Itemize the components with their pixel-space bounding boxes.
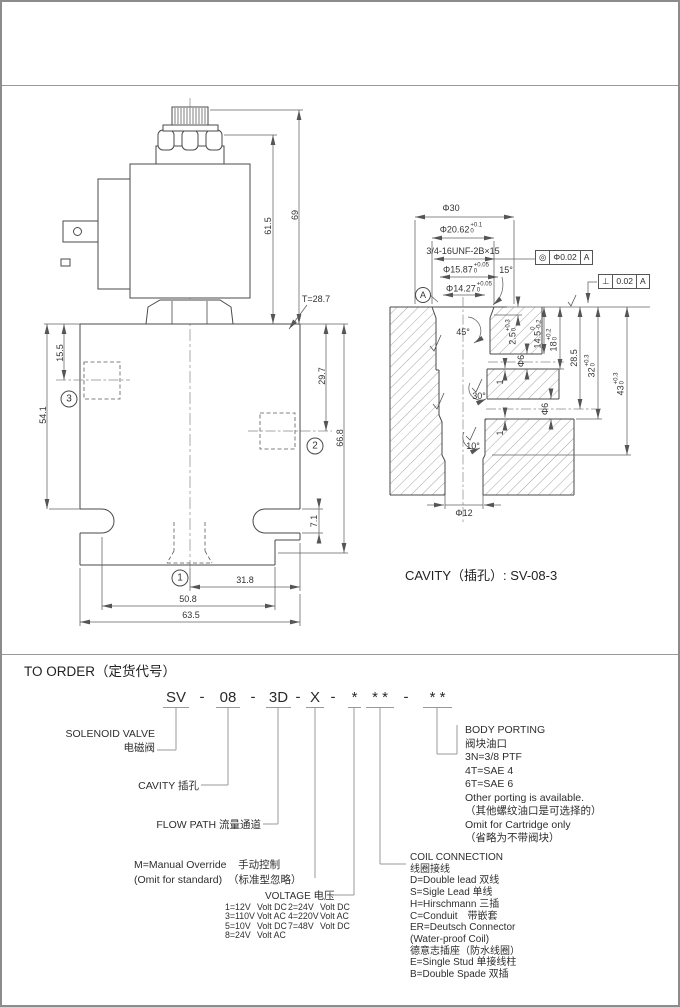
dim-31-8: 31.8	[236, 575, 254, 585]
dim-66-8: 66.8	[335, 429, 345, 447]
dim-dia15-87: Φ15.87 +0.050	[443, 264, 489, 275]
label-cavity: CAVITY 插孔	[102, 778, 199, 793]
code-dash-3: -	[296, 689, 301, 706]
dim-2-5: 2.5 +0.30	[507, 319, 518, 344]
angle-15: 15°	[499, 265, 513, 275]
label-manual-override: M=Manual Override 手动控制 (Omit for standar…	[134, 857, 301, 887]
gdt-perpendicularity-frame: ⊥ 0.02 A	[598, 274, 650, 289]
code-part-x: X	[306, 689, 324, 708]
code-part-star: *	[348, 689, 361, 708]
dim-54-1: 54.1	[38, 406, 48, 424]
dim-dia6-b: Φ6	[540, 403, 550, 415]
dim-1b: 1	[495, 430, 505, 435]
voltage-unit: Volt DC	[320, 922, 356, 931]
dim-dia6-a: Φ6	[516, 355, 526, 367]
coil-connection-block: COIL CONNECTION 线圈接线 D=Double lead 双线 S=…	[410, 852, 520, 981]
code-part-08: 08	[216, 689, 240, 708]
voltage-option: 8=24V	[225, 931, 257, 940]
dim-43: 43 +0.30	[615, 373, 626, 396]
voltage-unit: Volt AC	[257, 931, 288, 940]
dim-18: 18 +0.20	[548, 329, 559, 352]
code-part-sv: SV	[163, 689, 189, 708]
body-porting-block: BODY PORTING 阀块油口 3N=3/8 PTF 4T=SAE 4 6T…	[465, 724, 602, 846]
dim-dia12: Φ12	[455, 508, 472, 518]
dim-32: 32 +0.30	[586, 355, 597, 378]
dim-69: 69	[290, 210, 300, 220]
thread-spec: 3/4-16UNF-2B×15	[426, 246, 499, 256]
datum-a-flag: A	[415, 287, 431, 303]
dim-61-5: 61.5	[263, 217, 273, 235]
perpendicularity-icon: ⊥	[599, 275, 612, 288]
label-solenoid-valve: SOLENOID VALVE 电磁阀	[42, 728, 155, 755]
port-1-badge: 1	[172, 570, 189, 587]
code-part-star-pair-2: * *	[423, 689, 452, 708]
dim-28-5: 28.5	[569, 349, 579, 367]
voltage-option: 7=48V	[288, 922, 320, 931]
code-part-3d: 3D	[266, 689, 291, 708]
angle-45: 45°	[456, 327, 470, 337]
dim-7-1: 7.1	[309, 515, 319, 528]
voltage-options-table: 1=12V Volt DC 2=24V Volt DC 3=110V Volt …	[225, 903, 356, 940]
dim-29-7: 29.7	[317, 367, 327, 385]
dim-dia30: Φ30	[442, 203, 459, 213]
label-voltage-title: VOLTAGE 电压	[265, 888, 335, 903]
code-part-star-pair-1: * *	[366, 689, 394, 708]
dim-15-5: 15.5	[55, 344, 65, 362]
label-flow-path: FLOW PATH 流量通道	[132, 817, 261, 832]
gdt-concentricity-frame: ◎ Φ0.02 A	[535, 250, 593, 265]
dim-dia14-27: Φ14.27 +0.050	[446, 283, 492, 294]
code-dash-1: -	[200, 689, 205, 706]
code-dash-5: -	[404, 689, 409, 706]
cavity-caption: CAVITY（插孔）: SV-08-3	[405, 565, 557, 584]
angle-10: 10°	[466, 441, 480, 451]
dim-1a: 1	[495, 379, 505, 384]
order-section-title: TO ORDER（定货代号）	[24, 660, 176, 680]
port-2-badge: 2	[307, 438, 324, 455]
coil-connection-title: COIL CONNECTION	[410, 852, 520, 864]
concentricity-icon: ◎	[536, 251, 549, 264]
dim-50-8: 50.8	[179, 594, 197, 604]
dim-coil-height-label: T=28.7	[302, 294, 330, 304]
code-dash-4: -	[331, 689, 336, 706]
dim-14-5: 14.5 0-0.2	[532, 320, 543, 349]
drawing-linework	[2, 2, 680, 1007]
port-3-badge: 3	[61, 391, 78, 408]
body-porting-title: BODY PORTING	[465, 724, 602, 738]
datasheet-page: T=28.7 69 61.5 15.5 54.1 29.7 66.8 7.1 3…	[0, 0, 680, 1007]
code-dash-2: -	[251, 689, 256, 706]
dim-dia20-62: Φ20.62 +0.10	[440, 224, 483, 235]
angle-30: 30°	[472, 391, 486, 401]
dim-63-5: 63.5	[182, 610, 200, 620]
